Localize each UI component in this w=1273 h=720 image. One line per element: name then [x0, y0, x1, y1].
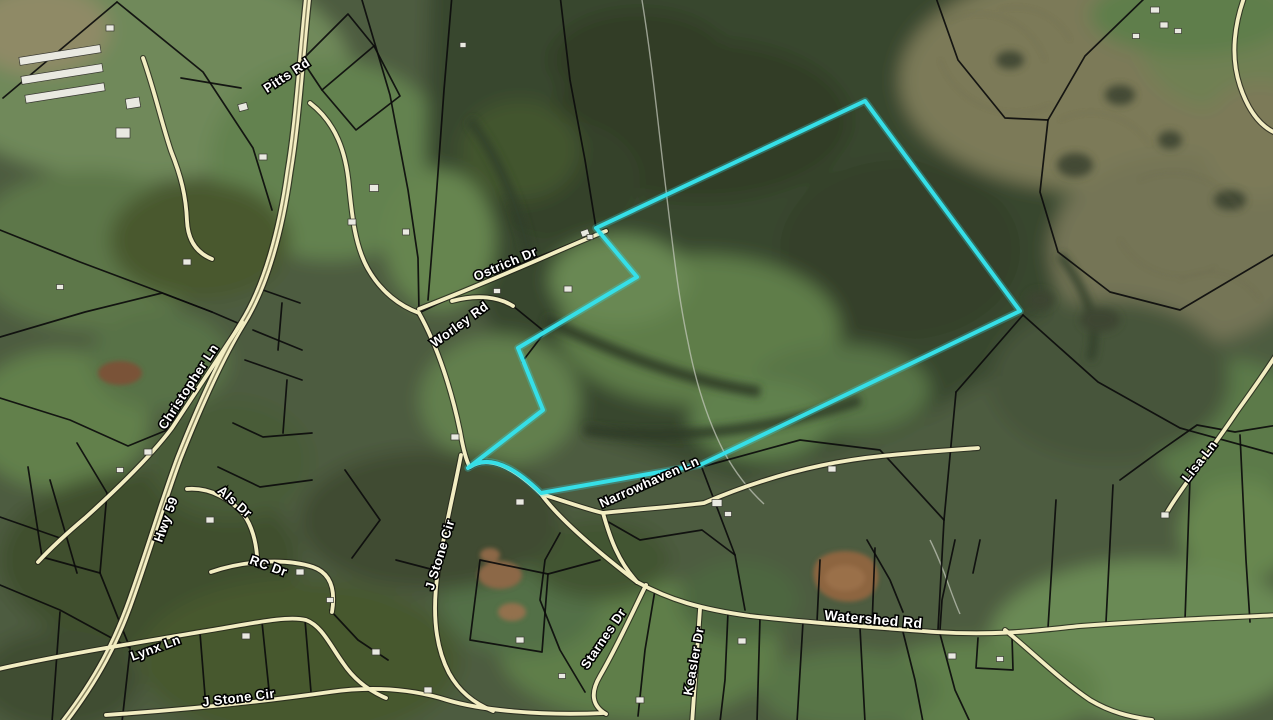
map-canvas[interactable]: Pitts RdChristopher LnHwy 59Als DrRC DrL… — [0, 0, 1273, 720]
building — [636, 697, 644, 703]
building — [296, 569, 304, 575]
building — [403, 229, 410, 235]
building — [559, 674, 566, 679]
map-viewport[interactable]: Pitts RdChristopher LnHwy 59Als DrRC DrL… — [0, 0, 1273, 720]
building — [712, 500, 722, 507]
building — [516, 637, 524, 643]
building — [1151, 7, 1160, 13]
building — [327, 598, 334, 603]
building — [370, 185, 379, 192]
building — [997, 657, 1004, 662]
building — [494, 289, 501, 294]
building — [1175, 29, 1182, 34]
building — [828, 466, 836, 472]
building — [57, 285, 64, 290]
building — [1133, 34, 1140, 39]
building — [116, 128, 130, 138]
building — [348, 219, 356, 225]
building — [564, 286, 572, 292]
building — [183, 259, 191, 265]
building — [106, 25, 114, 31]
building — [516, 499, 524, 505]
building — [1161, 512, 1169, 518]
building — [242, 633, 250, 639]
building — [451, 434, 459, 440]
building — [125, 97, 140, 109]
building — [144, 449, 152, 455]
building — [117, 468, 124, 473]
building — [587, 235, 593, 240]
building — [1160, 22, 1168, 28]
building — [460, 43, 466, 48]
building — [206, 517, 214, 523]
building — [372, 649, 380, 655]
building — [725, 512, 732, 517]
building — [259, 154, 267, 160]
building — [948, 653, 956, 659]
building — [738, 638, 746, 644]
building — [424, 687, 432, 693]
